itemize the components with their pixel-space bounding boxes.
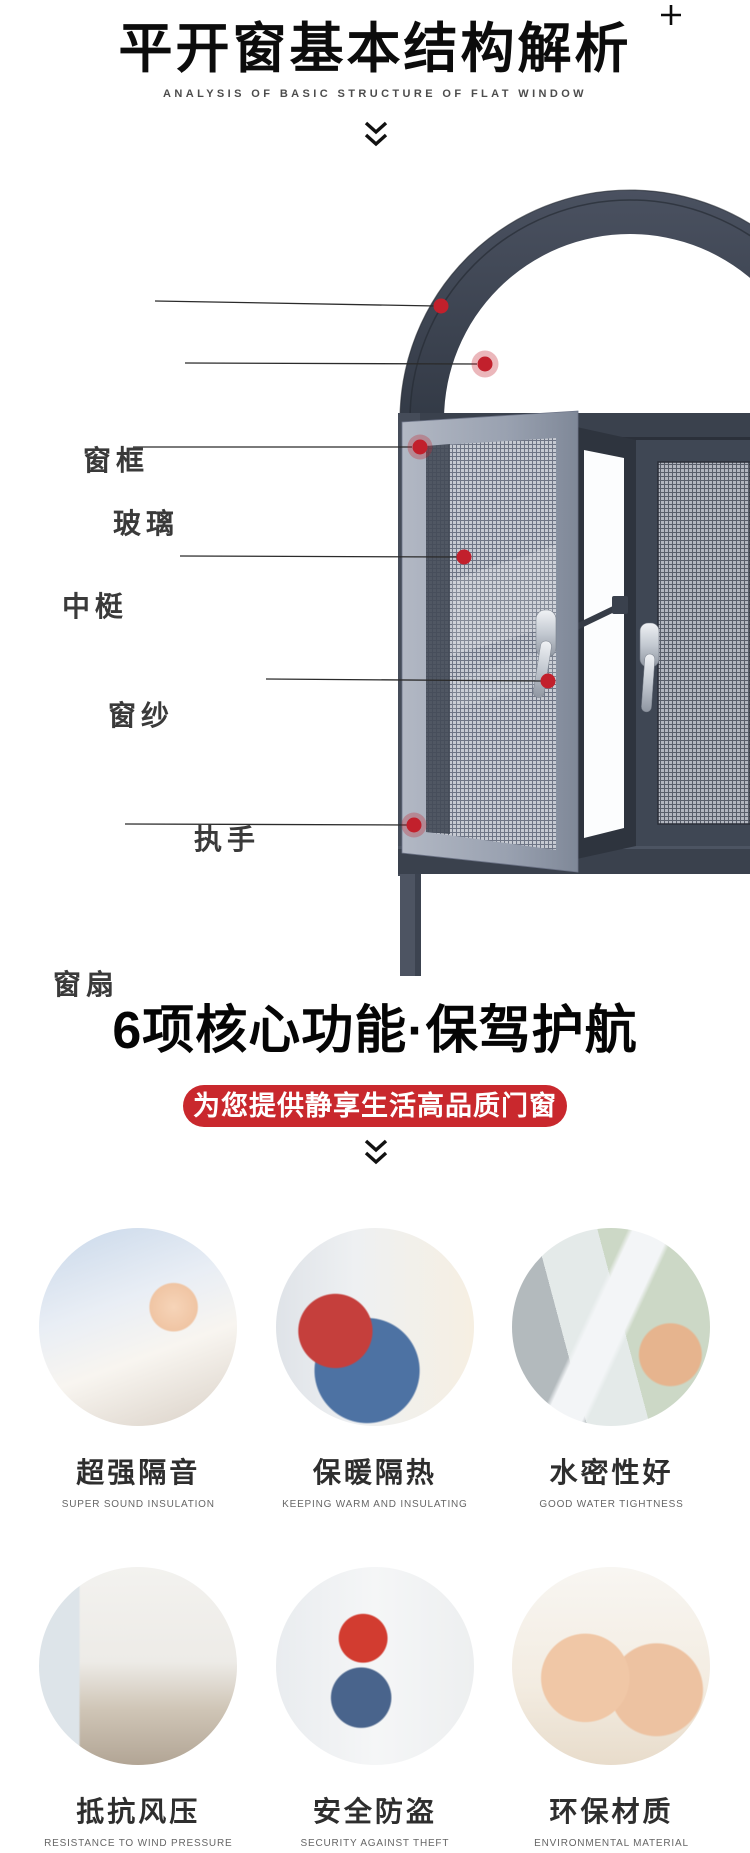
feature-security: 安全防盗 SECURITY AGAINST THEFT	[257, 1567, 494, 1849]
feature-subtitle: GOOD WATER TIGHTNESS	[539, 1499, 683, 1510]
feature-eco-material: 环保材质 ENVIRONMENTAL MATERIAL	[493, 1567, 730, 1849]
feature-photo-child-at-window	[276, 1228, 474, 1426]
feature-title: 环保材质	[549, 1790, 673, 1830]
feature-wind-pressure: 抵抗风压 RESISTANCE TO WIND PRESSURE	[20, 1567, 257, 1849]
callout-label-screen: 窗纱	[108, 697, 174, 735]
feature-title: 安全防盗	[313, 1790, 437, 1830]
callout-label-glass: 玻璃	[113, 505, 179, 543]
feature-water-tightness: 水密性好 GOOD WATER TIGHTNESS	[493, 1228, 730, 1510]
feature-photo-handle-in-rain	[512, 1228, 710, 1426]
feature-subtitle: KEEPING WARM AND INSULATING	[282, 1499, 468, 1510]
feature-photo-babies	[512, 1567, 710, 1765]
slogan-banner: 为您提供静享生活高品质门窗	[183, 1085, 567, 1127]
callout-label-sash: 窗扇	[53, 966, 119, 1004]
double-chevron-down-icon	[362, 120, 390, 150]
features-row-2: 抵抗风压 RESISTANCE TO WIND PRESSURE 安全防盗 SE…	[20, 1567, 730, 1849]
feature-title: 水密性好	[549, 1451, 673, 1491]
feature-photo-woman-at-window	[276, 1567, 474, 1765]
callout-label-frame: 窗框	[83, 442, 149, 480]
section-title: 6项核心功能·保驾护航	[0, 1002, 750, 1062]
feature-subtitle: SECURITY AGAINST THEFT	[301, 1838, 450, 1849]
window-arch	[400, 190, 750, 420]
double-chevron-down-icon	[362, 1138, 390, 1168]
feature-warm-insulating: 保暖隔热 KEEPING WARM AND INSULATING	[257, 1228, 494, 1510]
feature-title: 超强隔音	[76, 1451, 200, 1491]
feature-subtitle: ENVIRONMENTAL MATERIAL	[534, 1838, 689, 1849]
callout-label-handle: 执手	[194, 821, 260, 859]
feature-title: 保暖隔热	[313, 1451, 437, 1491]
feature-photo-living-room	[39, 1567, 237, 1765]
page-title: 平开窗基本结构解析	[0, 18, 750, 80]
promo-page: 平开窗基本结构解析 ANALYSIS OF BASIC STRUCTURE OF…	[0, 0, 750, 1853]
callout-label-mullion: 中梃	[62, 588, 128, 626]
feature-photo-sleeping-baby	[39, 1228, 237, 1426]
feature-subtitle: SUPER SOUND INSULATION	[62, 1499, 215, 1510]
feature-title: 抵抗风压	[76, 1790, 200, 1830]
feature-subtitle: RESISTANCE TO WIND PRESSURE	[44, 1838, 232, 1849]
features-row-1: 超强隔音 SUPER SOUND INSULATION 保暖隔热 KEEPING…	[20, 1228, 730, 1510]
feature-sound-insulation: 超强隔音 SUPER SOUND INSULATION	[20, 1228, 257, 1510]
page-subtitle: ANALYSIS OF BASIC STRUCTURE OF FLAT WIND…	[0, 88, 750, 100]
window-structure-diagram: 窗框 玻璃 中梃 窗纱 执手 窗扇	[0, 160, 750, 990]
